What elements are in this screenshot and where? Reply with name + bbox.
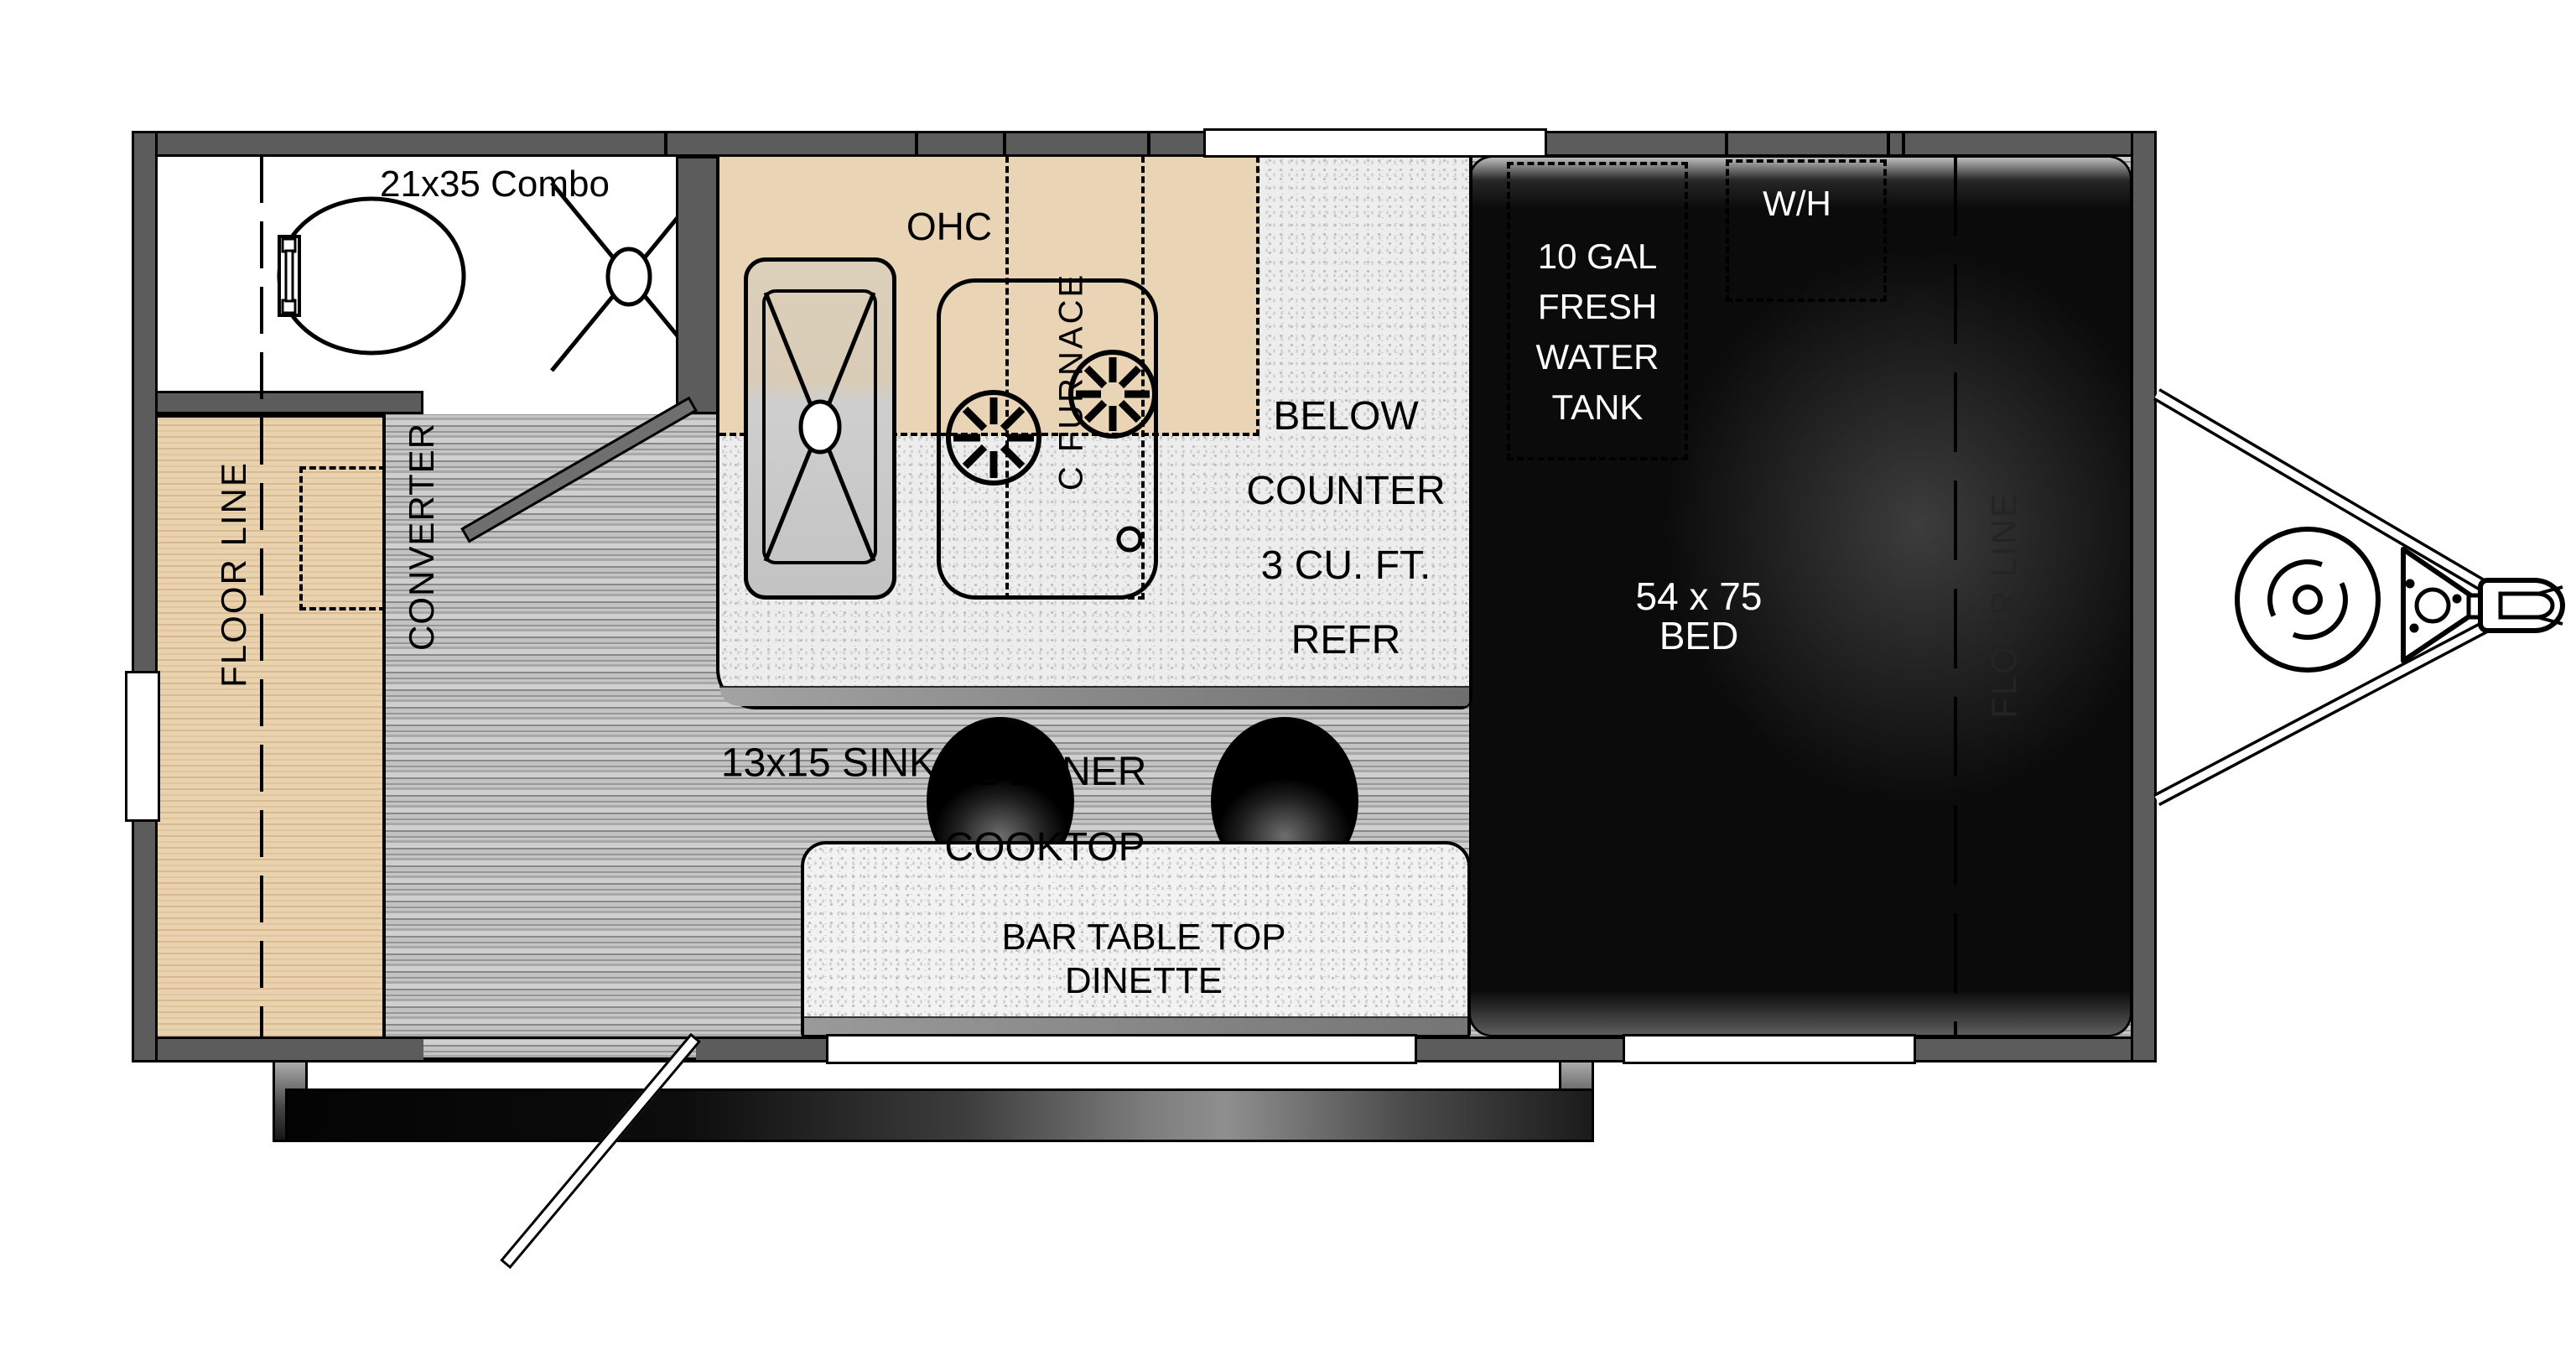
cooktop-label-line: COOKTOP	[911, 810, 1179, 886]
tank-label-line: 10 GAL	[1507, 231, 1688, 282]
wall-seam	[1147, 131, 1150, 157]
furnace-label: C FURNACE	[1053, 273, 1091, 491]
wall-top	[132, 131, 2157, 157]
wall-seam	[1003, 131, 1006, 157]
tank-label-line: WATER	[1507, 332, 1688, 382]
toilet-icon	[279, 199, 464, 353]
wall-seam	[915, 131, 918, 157]
converter-outline	[299, 466, 386, 610]
bathroom-wall-right	[676, 156, 719, 414]
fresh-water-tank-label: 10 GAL FRESH WATER TANK	[1507, 231, 1688, 433]
dinette-label: BAR TABLE TOP DINETTE	[884, 916, 1404, 1003]
tank-label-line: FRESH	[1507, 282, 1688, 332]
tank-label-line: TANK	[1507, 382, 1688, 433]
dinette-table-edge	[804, 1016, 1467, 1035]
entry-door-opening	[423, 1039, 696, 1060]
floorplan-canvas: 21x35 Combo OHC C FURNACE BELOW COUNTER …	[0, 0, 2576, 1356]
spare-tire-icon	[2237, 529, 2378, 670]
bed-highlight-bottom	[1471, 991, 2130, 1035]
converter-label: CONVERTER	[402, 423, 442, 651]
coupler-icon	[2469, 580, 2563, 631]
cooktop-label-line: 2 BURNER	[911, 735, 1179, 810]
bed-label: 54 x 75 BED	[1573, 577, 1825, 656]
bathroom-combo-label: 21x35 Combo	[380, 164, 610, 205]
floor-line-right	[1954, 156, 1957, 1036]
refrigerator-label: BELOW COUNTER 3 CU. FT. REFR	[1220, 379, 1472, 678]
sink-drain-icon	[766, 293, 874, 561]
ohc-label: OHC	[906, 204, 992, 249]
floor-line-right-label: FLOOR LINE	[1984, 492, 2024, 719]
window-left	[125, 671, 160, 822]
dinette-label-line: BAR TABLE TOP	[884, 916, 1404, 959]
refrigerator-label-line: COUNTER	[1220, 454, 1472, 528]
window-bottom-bed	[1623, 1034, 1916, 1064]
water-heater-label: W/H	[1763, 184, 1831, 224]
wall-seam	[1887, 131, 1890, 157]
floor-line-left	[260, 156, 263, 1036]
wall-seam	[1725, 131, 1728, 157]
refrigerator-label-line: 3 CU. FT.	[1220, 528, 1472, 603]
wall-seam	[664, 131, 667, 157]
trailer-tongue	[2147, 319, 2576, 906]
entry-step	[285, 1088, 1594, 1142]
entry-door-swing	[500, 1033, 701, 1269]
refrigerator-label-line: REFR	[1220, 603, 1472, 678]
wall-left	[132, 131, 158, 1062]
gas-valve-icon	[1119, 528, 1140, 550]
window-top	[1203, 128, 1547, 158]
floor-line-left-label: FLOOR LINE	[214, 461, 254, 688]
refrigerator-label-line: BELOW	[1220, 379, 1472, 454]
water-heater-outline	[1726, 159, 1887, 302]
bed-label-line: 54 x 75	[1573, 577, 1825, 616]
cooktop-label: 2 BURNER COOKTOP	[911, 735, 1179, 886]
wall-seam	[1902, 131, 1905, 157]
bathroom-wall-bottom	[132, 391, 423, 414]
bed-label-line: BED	[1573, 616, 1825, 656]
sink-label: 13x15 SINK	[721, 740, 936, 787]
window-bottom-dinette	[826, 1034, 1417, 1064]
dinette-label-line: DINETTE	[884, 959, 1404, 1003]
burner-icon-left	[948, 392, 1039, 483]
